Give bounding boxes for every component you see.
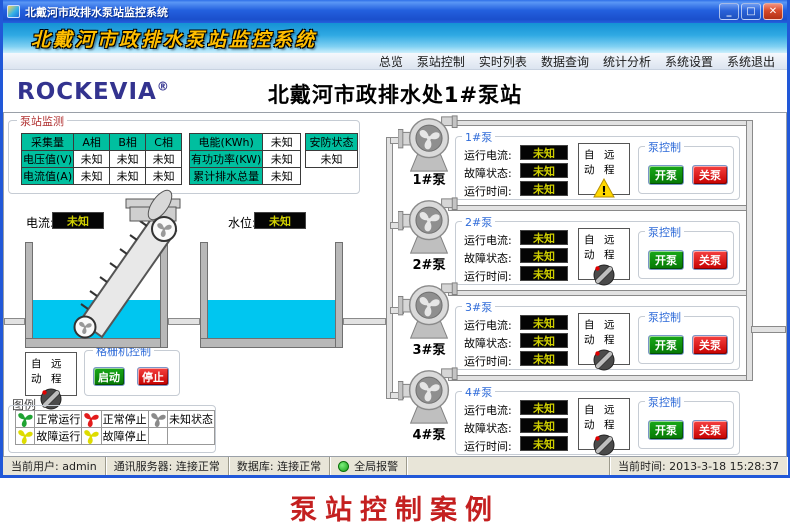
close-icon: ✕ — [769, 6, 777, 17]
pump2-mode-switch[interactable]: 自动远程 — [578, 228, 630, 280]
pump1-start-button[interactable]: 开泵 — [648, 165, 684, 185]
pump2-name: 2#泵 — [398, 254, 460, 273]
pump2-panel: 2#泵 运行电流: 未知 故障状态: 未知 运行时间: 未知 自动远程 泵控制 … — [455, 221, 740, 285]
pump3-control-group: 泵控制 开泵 关泵 — [638, 316, 734, 364]
row-label: 电流值(A) — [22, 168, 74, 185]
cell-value: 未知 — [306, 151, 358, 168]
page-title: 北戴河市政排水处1#泵站 — [268, 79, 522, 109]
fault-status-label: 故障状态: — [464, 250, 512, 266]
remote-label: 远程 — [51, 356, 71, 386]
pump4-mode-switch[interactable]: 自动远程 — [578, 398, 630, 450]
fault-status-value: 未知 — [520, 248, 568, 263]
run-time-value: 未知 — [520, 351, 568, 366]
right-tank-left-wall — [200, 242, 208, 348]
col-header: A相 — [74, 134, 110, 151]
energy-table: 电能(KWh) 未知 有功功率(KW) 未知 累计排水总量 未知 — [189, 133, 301, 185]
pump1-panel-title: 1#泵 — [462, 129, 495, 145]
window-title: 北戴河市政排水泵站监控系统 — [25, 4, 719, 20]
cell-value: 未知 — [74, 151, 110, 168]
fan-icon-unknown — [150, 411, 166, 427]
station-monitor-panel: 泵站监测 采集量 A相 B相 C相 电压值(V) 未知 未知 未知 电流值(A)… — [8, 120, 360, 194]
cell-value: 未知 — [146, 168, 182, 185]
minimize-icon: _ — [727, 6, 732, 17]
pump4-control-group: 泵控制 开泵 关泵 — [638, 401, 734, 449]
warning-icon — [593, 178, 615, 198]
fan-icon-fault-stop — [83, 428, 99, 444]
security-table: 安防状态 未知 — [305, 133, 358, 168]
pump3-stop-button[interactable]: 关泵 — [692, 335, 728, 355]
pump3-discharge-pipe — [448, 290, 752, 296]
run-current-value: 未知 — [520, 400, 568, 415]
status-comm-server: 通讯服务器: 连接正常 — [106, 457, 229, 475]
grid-start-button[interactable]: 启动 — [93, 367, 125, 386]
run-time-value: 未知 — [520, 181, 568, 196]
right-tank-water — [208, 300, 335, 338]
fault-status-label: 故障状态: — [464, 335, 512, 351]
legend-panel: 正常运行 正常停止 未知状态 故障运行 故障停止 — [8, 405, 216, 453]
run-time-value: 未知 — [520, 266, 568, 281]
titlebar: 北戴河市政排水泵站监控系统 _ □ ✕ — [3, 0, 787, 23]
run-current-value: 未知 — [520, 230, 568, 245]
water-level-value: 未知 — [254, 212, 306, 229]
pump4-icon — [398, 367, 460, 425]
cell-value: 未知 — [263, 151, 301, 168]
alarm-status-dot — [338, 461, 349, 472]
cell-value: 未知 — [110, 151, 146, 168]
auto-label: 自动 — [584, 232, 604, 262]
run-time-label: 运行时间: — [464, 183, 512, 199]
run-current-label: 运行电流: — [464, 147, 512, 163]
menu-item-pump-control[interactable]: 泵站控制 — [417, 53, 465, 70]
pump1-icon — [398, 115, 460, 173]
cell-value: 未知 — [110, 168, 146, 185]
fault-status-value: 未知 — [520, 418, 568, 433]
status-time-value: 2013-3-18 15:28:37 — [669, 460, 779, 473]
pump1-discharge-pipe — [448, 120, 752, 126]
remote-label: 远程 — [604, 402, 624, 432]
run-current-label: 运行电流: — [464, 402, 512, 418]
auto-label: 自动 — [584, 317, 604, 347]
status-db-value: 连接正常 — [277, 458, 321, 474]
close-button[interactable]: ✕ — [763, 3, 783, 20]
remote-label: 远程 — [604, 317, 624, 347]
pump3-name: 3#泵 — [398, 339, 460, 358]
grid-stop-button[interactable]: 停止 — [137, 367, 169, 386]
remote-label: 远程 — [604, 232, 624, 262]
row-label: 电压值(V) — [22, 151, 74, 168]
run-time-label: 运行时间: — [464, 353, 512, 369]
minimize-button[interactable]: _ — [719, 3, 739, 20]
bar-screen-machine — [60, 185, 190, 345]
fault-status-value: 未知 — [520, 163, 568, 178]
grid-machine-control-panel: 格栅机控制 启动 停止 — [84, 350, 180, 396]
auto-label: 自动 — [31, 356, 51, 386]
col-header: B相 — [110, 134, 146, 151]
status-database: 数据库: 连接正常 — [229, 457, 330, 475]
app-window: 北戴河市政排水泵站监控系统 _ □ ✕ 北戴河市政排水泵站监控系统 总览 泵站控… — [0, 0, 790, 478]
phase-table: 采集量 A相 B相 C相 电压值(V) 未知 未知 未知 电流值(A) 未知 未… — [21, 133, 182, 185]
banner: 北戴河市政排水泵站监控系统 — [3, 23, 787, 53]
fan-icon-fault-run — [17, 428, 33, 444]
rotary-switch-icon — [592, 433, 616, 457]
pump4-discharge-pipe — [448, 375, 752, 381]
fault-status-label: 故障状态: — [464, 420, 512, 436]
alarm-label: 全局报警 — [354, 458, 398, 474]
inlet-pipe — [4, 318, 25, 325]
menu-item-data-query[interactable]: 数据查询 — [541, 53, 589, 70]
suction-manifold-pipe — [386, 137, 393, 399]
tank-to-manifold-pipe — [343, 318, 386, 325]
cell-value: 未知 — [263, 134, 301, 151]
run-current-value: 未知 — [520, 315, 568, 330]
grid-machine-mode-switch[interactable]: 自动 远程 — [25, 352, 77, 396]
auto-label: 自动 — [584, 147, 604, 177]
pump2-discharge-pipe — [448, 205, 752, 211]
pump3-start-button[interactable]: 开泵 — [648, 335, 684, 355]
pump1-panel: 1#泵 运行电流: 未知 故障状态: 未知 运行时间: 未知 自动远程 泵控制 … — [455, 136, 740, 200]
pump3-mode-switch[interactable]: 自动远程 — [578, 313, 630, 365]
fan-icon-normal-stop — [83, 411, 99, 427]
legend-label: 故障运行 — [35, 428, 82, 445]
menu-item-realtime-list[interactable]: 实时列表 — [479, 53, 527, 70]
statusbar: 当前用户: admin 通讯服务器: 连接正常 数据库: 连接正常 全局报警 当… — [3, 457, 787, 475]
maximize-icon: □ — [746, 6, 755, 17]
outfall-pipe — [751, 326, 786, 333]
legend-label: 故障停止 — [101, 428, 148, 445]
legend-label: 正常运行 — [35, 411, 82, 428]
pump2-panel-title: 2#泵 — [462, 214, 495, 230]
status-comm-value: 连接正常 — [176, 458, 220, 474]
app-icon — [7, 5, 20, 18]
col-header: 采集量 — [22, 134, 74, 151]
col-header: 安防状态 — [306, 134, 358, 151]
legend-label: 正常停止 — [101, 411, 148, 428]
pump2-control-group: 泵控制 开泵 关泵 — [638, 231, 734, 279]
col-header: C相 — [146, 134, 182, 151]
banner-title: 北戴河市政排水泵站监控系统 — [31, 25, 317, 52]
row-label: 累计排水总量 — [190, 168, 263, 185]
status-user: 当前用户: admin — [3, 457, 106, 475]
fan-icon-normal-run — [17, 411, 33, 427]
pump1-mode-switch[interactable]: 自动远程 — [578, 143, 630, 195]
rotary-switch-icon — [592, 263, 616, 287]
pump3-panel: 3#泵 运行电流: 未知 故障状态: 未知 运行时间: 未知 自动远程 泵控制 … — [455, 306, 740, 370]
discharge-manifold-pipe — [746, 120, 753, 381]
pump-control-title: 泵控制 — [645, 139, 684, 155]
run-time-label: 运行时间: — [464, 268, 512, 284]
remote-label: 远程 — [604, 147, 624, 177]
run-time-label: 运行时间: — [464, 438, 512, 454]
menu-item-overview[interactable]: 总览 — [379, 53, 403, 70]
fault-status-value: 未知 — [520, 333, 568, 348]
pump1-stop-button[interactable]: 关泵 — [692, 165, 728, 185]
rotary-switch-icon — [592, 348, 616, 372]
brand-logo: ROCKEVIA® — [17, 79, 170, 105]
run-current-label: 运行电流: — [464, 317, 512, 333]
menu-item-settings[interactable]: 系统设置 — [665, 53, 713, 70]
fault-status-label: 故障状态: — [464, 165, 512, 181]
menu-item-exit[interactable]: 系统退出 — [727, 53, 775, 70]
legend-label: 未知状态 — [167, 411, 214, 428]
pump3-icon — [398, 282, 460, 340]
status-spacer — [407, 457, 610, 475]
pump4-name: 4#泵 — [398, 424, 460, 443]
pump4-stop-button[interactable]: 关泵 — [692, 420, 728, 440]
header: ROCKEVIA® 北戴河市政排水处1#泵站 — [3, 70, 787, 112]
cell-value: 未知 — [263, 168, 301, 185]
status-user-value: admin — [62, 460, 96, 473]
pump2-start-button[interactable]: 开泵 — [648, 250, 684, 270]
status-time: 当前时间: 2013-3-18 15:28:37 — [610, 457, 787, 475]
auto-label: 自动 — [584, 402, 604, 432]
registered-mark: ® — [157, 79, 170, 93]
pump-control-title: 泵控制 — [645, 394, 684, 410]
pump4-panel-title: 4#泵 — [462, 384, 495, 400]
menubar: 总览 泵站控制 实时列表 数据查询 统计分析 系统设置 系统退出 — [3, 53, 787, 70]
water-level-label: 水位: — [228, 214, 256, 231]
menu-item-statistics[interactable]: 统计分析 — [603, 53, 651, 70]
pump1-name: 1#泵 — [398, 169, 460, 188]
pump4-panel: 4#泵 运行电流: 未知 故障状态: 未知 运行时间: 未知 自动远程 泵控制 … — [455, 391, 740, 455]
run-current-label: 运行电流: — [464, 232, 512, 248]
page-caption: 泵站控制案例 — [0, 488, 790, 527]
pump1-control-group: 泵控制 开泵 关泵 — [638, 146, 734, 194]
current-label: 电流: — [26, 214, 54, 231]
pump2-icon — [398, 197, 460, 255]
row-label: 电能(KWh) — [190, 134, 263, 151]
pump-control-title: 泵控制 — [645, 224, 684, 240]
cell-value: 未知 — [74, 168, 110, 185]
run-time-value: 未知 — [520, 436, 568, 451]
status-global-alarm: 全局报警 — [330, 457, 407, 475]
pump-control-title: 泵控制 — [645, 309, 684, 325]
pump4-start-button[interactable]: 开泵 — [648, 420, 684, 440]
run-current-value: 未知 — [520, 145, 568, 160]
left-tank-left-wall — [25, 242, 33, 348]
legend-table: 正常运行 正常停止 未知状态 故障运行 故障停止 — [15, 410, 215, 445]
main-view: 泵站监测 采集量 A相 B相 C相 电压值(V) 未知 未知 未知 电流值(A)… — [3, 112, 787, 457]
pump3-panel-title: 3#泵 — [462, 299, 495, 315]
cell-value: 未知 — [146, 151, 182, 168]
station-monitor-title: 泵站监测 — [17, 113, 67, 129]
row-label: 有功功率(KW) — [190, 151, 263, 168]
pump2-stop-button[interactable]: 关泵 — [692, 250, 728, 270]
maximize-button[interactable]: □ — [741, 3, 761, 20]
right-tank-right-wall — [335, 242, 343, 348]
right-tank-bottom — [200, 338, 343, 348]
